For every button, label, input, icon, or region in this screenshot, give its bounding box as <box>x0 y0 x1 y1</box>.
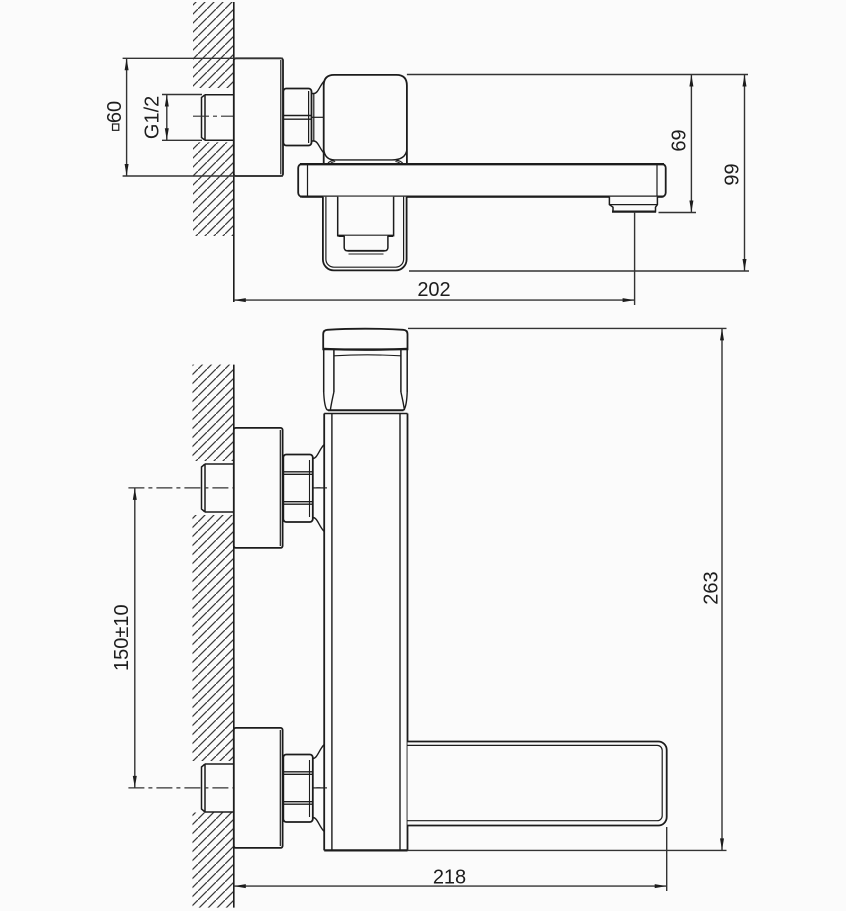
svg-text:69: 69 <box>668 129 690 151</box>
svg-text:218: 218 <box>433 867 466 889</box>
svg-text:202: 202 <box>417 279 450 301</box>
svg-text:60: 60 <box>104 101 126 123</box>
svg-text:150±10: 150±10 <box>111 604 133 671</box>
svg-text:99: 99 <box>721 163 743 185</box>
svg-text:G1/2: G1/2 <box>141 96 163 139</box>
svg-text:263: 263 <box>701 571 723 604</box>
